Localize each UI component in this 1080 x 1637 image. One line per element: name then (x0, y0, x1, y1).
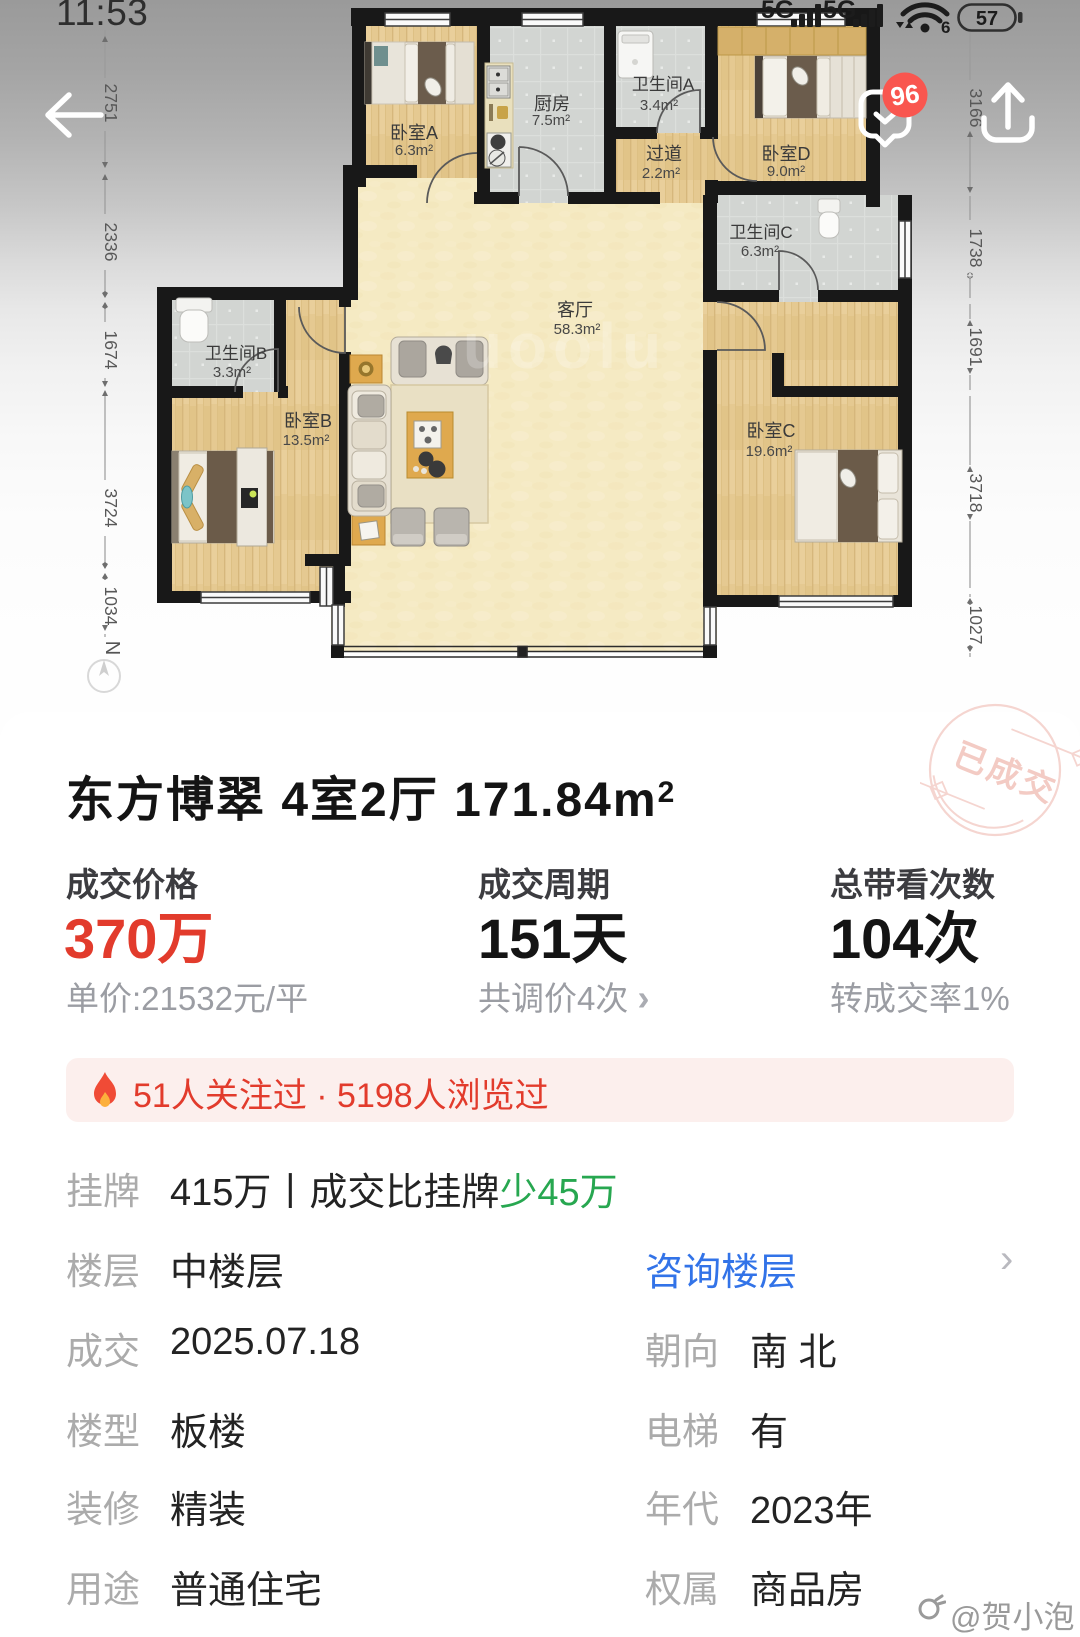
svg-text:96: 96 (889, 78, 922, 112)
svg-text:卧室B: 卧室B (284, 411, 332, 431)
svg-text:6: 6 (941, 18, 950, 37)
svg-text:客厅: 客厅 (557, 300, 593, 320)
svg-text:卫生间C: 卫生间C (729, 223, 792, 242)
svg-text:19.6m²: 19.6m² (746, 443, 793, 460)
svg-text:1034: 1034 (101, 587, 121, 626)
svg-text:1738: 1738 (966, 229, 986, 268)
svg-text:1027: 1027 (966, 606, 986, 645)
svg-text:卫生间B: 卫生间B (205, 344, 267, 363)
svg-text:3718: 3718 (966, 474, 986, 513)
svg-text:13.5m²: 13.5m² (283, 432, 330, 449)
svg-text:2336: 2336 (101, 223, 121, 262)
svg-text:已成交: 已成交 (949, 735, 1063, 810)
svg-text:1674: 1674 (101, 331, 121, 370)
svg-text:6.3m²: 6.3m² (741, 243, 779, 260)
svg-text:3.3m²: 3.3m² (213, 364, 251, 381)
svg-text:57: 57 (976, 8, 998, 30)
svg-text:3724: 3724 (101, 489, 121, 528)
svg-text:N: N (101, 641, 123, 655)
svg-text:1691: 1691 (966, 328, 986, 367)
svg-text:58.3m²: 58.3m² (554, 321, 601, 338)
svg-text:卧室C: 卧室C (747, 421, 796, 441)
